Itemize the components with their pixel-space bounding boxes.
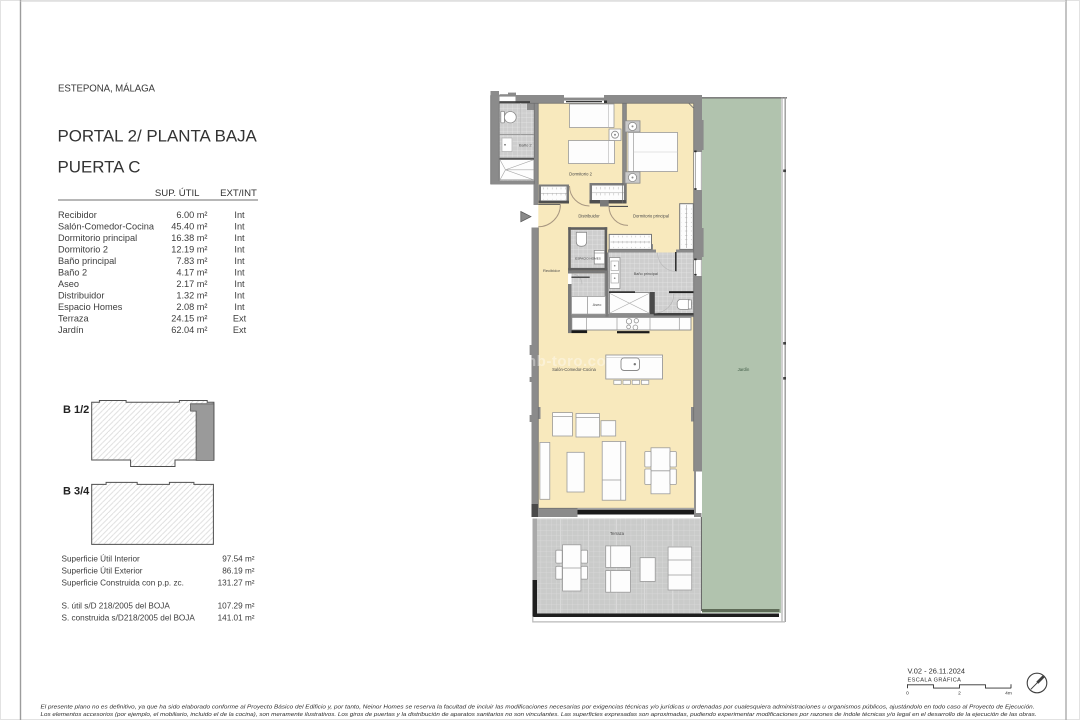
svg-text:Baño principal: Baño principal	[634, 272, 658, 276]
svg-text:Dormitorio principal: Dormitorio principal	[633, 214, 669, 219]
svg-text:Ext: Ext	[233, 314, 247, 324]
svg-text:0: 0	[906, 691, 909, 697]
svg-text:B 3/4: B 3/4	[63, 486, 90, 498]
svg-text:62.04 m²: 62.04 m²	[171, 325, 207, 335]
svg-text:24.15 m²: 24.15 m²	[171, 314, 207, 324]
svg-text:Dormitorio 2: Dormitorio 2	[58, 245, 108, 255]
svg-text:PUERTA C: PUERTA C	[58, 158, 141, 177]
svg-text:S. construida s/D218/2005 del: S. construida s/D218/2005 del BOJA	[62, 614, 196, 623]
svg-text:Terraza: Terraza	[58, 314, 90, 324]
svg-text:El presente plano no es defini: El presente plano no es definitivo, ya q…	[41, 704, 1035, 710]
svg-text:16.38 m²: 16.38 m²	[171, 233, 207, 243]
svg-text:45.40 m²: 45.40 m²	[171, 222, 207, 232]
svg-text:4m: 4m	[1005, 691, 1012, 697]
svg-text:2.17 m²: 2.17 m²	[176, 279, 207, 289]
svg-text:107.29 m²: 107.29 m²	[218, 602, 255, 611]
svg-text:Terraza: Terraza	[610, 531, 625, 536]
svg-text:Int: Int	[234, 279, 245, 289]
svg-text:Baño 2: Baño 2	[519, 143, 532, 148]
svg-text:Baño 2: Baño 2	[58, 268, 87, 278]
svg-text:Int: Int	[234, 245, 245, 255]
svg-text:ESCALA GRÁFICA: ESCALA GRÁFICA	[908, 677, 962, 684]
svg-text:Espacio Homes: Espacio Homes	[58, 302, 123, 312]
svg-text:B 1/2: B 1/2	[63, 404, 89, 416]
svg-text:Jardín: Jardín	[58, 325, 84, 335]
svg-text:PORTAL 2/ PLANTA BAJA: PORTAL 2/ PLANTA BAJA	[58, 127, 258, 146]
svg-text:Superficie Útil Interior: Superficie Útil Interior	[62, 554, 141, 564]
svg-text:Salón-Comedor-Cocina: Salón-Comedor-Cocina	[552, 367, 596, 372]
svg-text:Int: Int	[234, 291, 245, 301]
svg-text:SUP. ÚTIL: SUP. ÚTIL	[155, 188, 200, 199]
svg-text:2: 2	[958, 691, 961, 697]
svg-text:Dormitorio 2: Dormitorio 2	[569, 172, 592, 177]
svg-text:Salón-Comedor-Cocina: Salón-Comedor-Cocina	[58, 222, 155, 232]
svg-text:Int: Int	[234, 302, 245, 312]
svg-text:Ext: Ext	[233, 325, 247, 335]
svg-text:Aseo: Aseo	[593, 303, 602, 307]
svg-text:Dormitorio principal: Dormitorio principal	[58, 233, 137, 243]
svg-text:Superficie Construida con p.p.: Superficie Construida con p.p. zc.	[62, 579, 184, 588]
svg-text:7.83 m²: 7.83 m²	[176, 256, 207, 266]
svg-text:1.32 m²: 1.32 m²	[176, 291, 207, 301]
svg-text:V.02 - 26.11.2024: V.02 - 26.11.2024	[908, 667, 966, 676]
svg-text:6.00 m²: 6.00 m²	[176, 210, 207, 220]
svg-text:131.27 m²: 131.27 m²	[218, 579, 255, 588]
svg-text:12.19 m²: 12.19 m²	[171, 245, 207, 255]
svg-text:86.19 m²: 86.19 m²	[222, 567, 255, 576]
svg-text:Recibidor: Recibidor	[543, 268, 561, 273]
svg-text:Int: Int	[234, 256, 245, 266]
svg-text:Superficie Útil Exterior: Superficie Útil Exterior	[62, 566, 143, 576]
svg-text:97.54 m²: 97.54 m²	[222, 555, 255, 564]
svg-text:EXT/INT: EXT/INT	[220, 188, 257, 199]
svg-text:ESPACIO HOMES: ESPACIO HOMES	[575, 257, 601, 261]
svg-text:Int: Int	[234, 222, 245, 232]
svg-text:Int: Int	[234, 210, 245, 220]
svg-text:Distribuidor: Distribuidor	[58, 291, 104, 301]
svg-text:2.08 m²: 2.08 m²	[176, 302, 207, 312]
svg-text:Los elementos accesorios (por: Los elementos accesorios (por ejemplo, e…	[41, 712, 1037, 718]
svg-text:S. útil s/D 218/2005 del BOJA: S. útil s/D 218/2005 del BOJA	[62, 602, 171, 611]
svg-text:4.17 m²: 4.17 m²	[176, 268, 207, 278]
svg-text:Recibidor: Recibidor	[58, 210, 97, 220]
svg-text:Int: Int	[234, 233, 245, 243]
svg-text:Aseo: Aseo	[58, 279, 79, 289]
svg-text:ESTEPONA, MÁLAGA: ESTEPONA, MÁLAGA	[58, 84, 156, 95]
svg-text:Int: Int	[234, 268, 245, 278]
svg-text:Distribuidor: Distribuidor	[578, 214, 600, 219]
svg-text:Jardín: Jardín	[738, 367, 750, 372]
svg-text:Baño principal: Baño principal	[58, 256, 116, 266]
svg-text:141.01 m²: 141.01 m²	[218, 614, 255, 623]
